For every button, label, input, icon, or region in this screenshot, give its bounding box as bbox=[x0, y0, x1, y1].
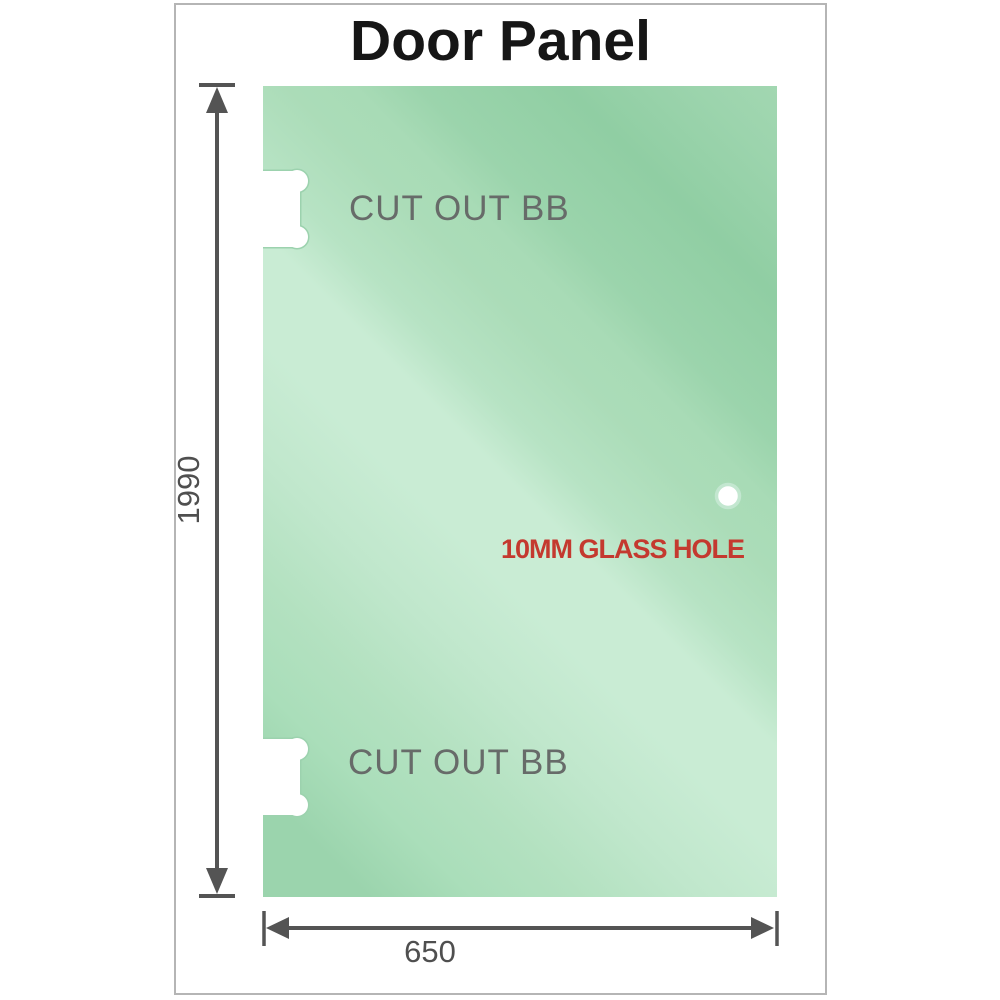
diagram-title: Door Panel bbox=[174, 8, 827, 74]
height-dimension-value: 1990 bbox=[169, 430, 209, 550]
cutout-label-bottom: CUT OUT BB bbox=[348, 744, 569, 782]
glass-hole-label: 10MM GLASS HOLE bbox=[501, 536, 721, 562]
width-dimension-value: 650 bbox=[380, 934, 480, 970]
door-panel-diagram: Door Panel bbox=[0, 0, 1000, 1000]
cutout-label-top: CUT OUT BB bbox=[349, 190, 570, 228]
